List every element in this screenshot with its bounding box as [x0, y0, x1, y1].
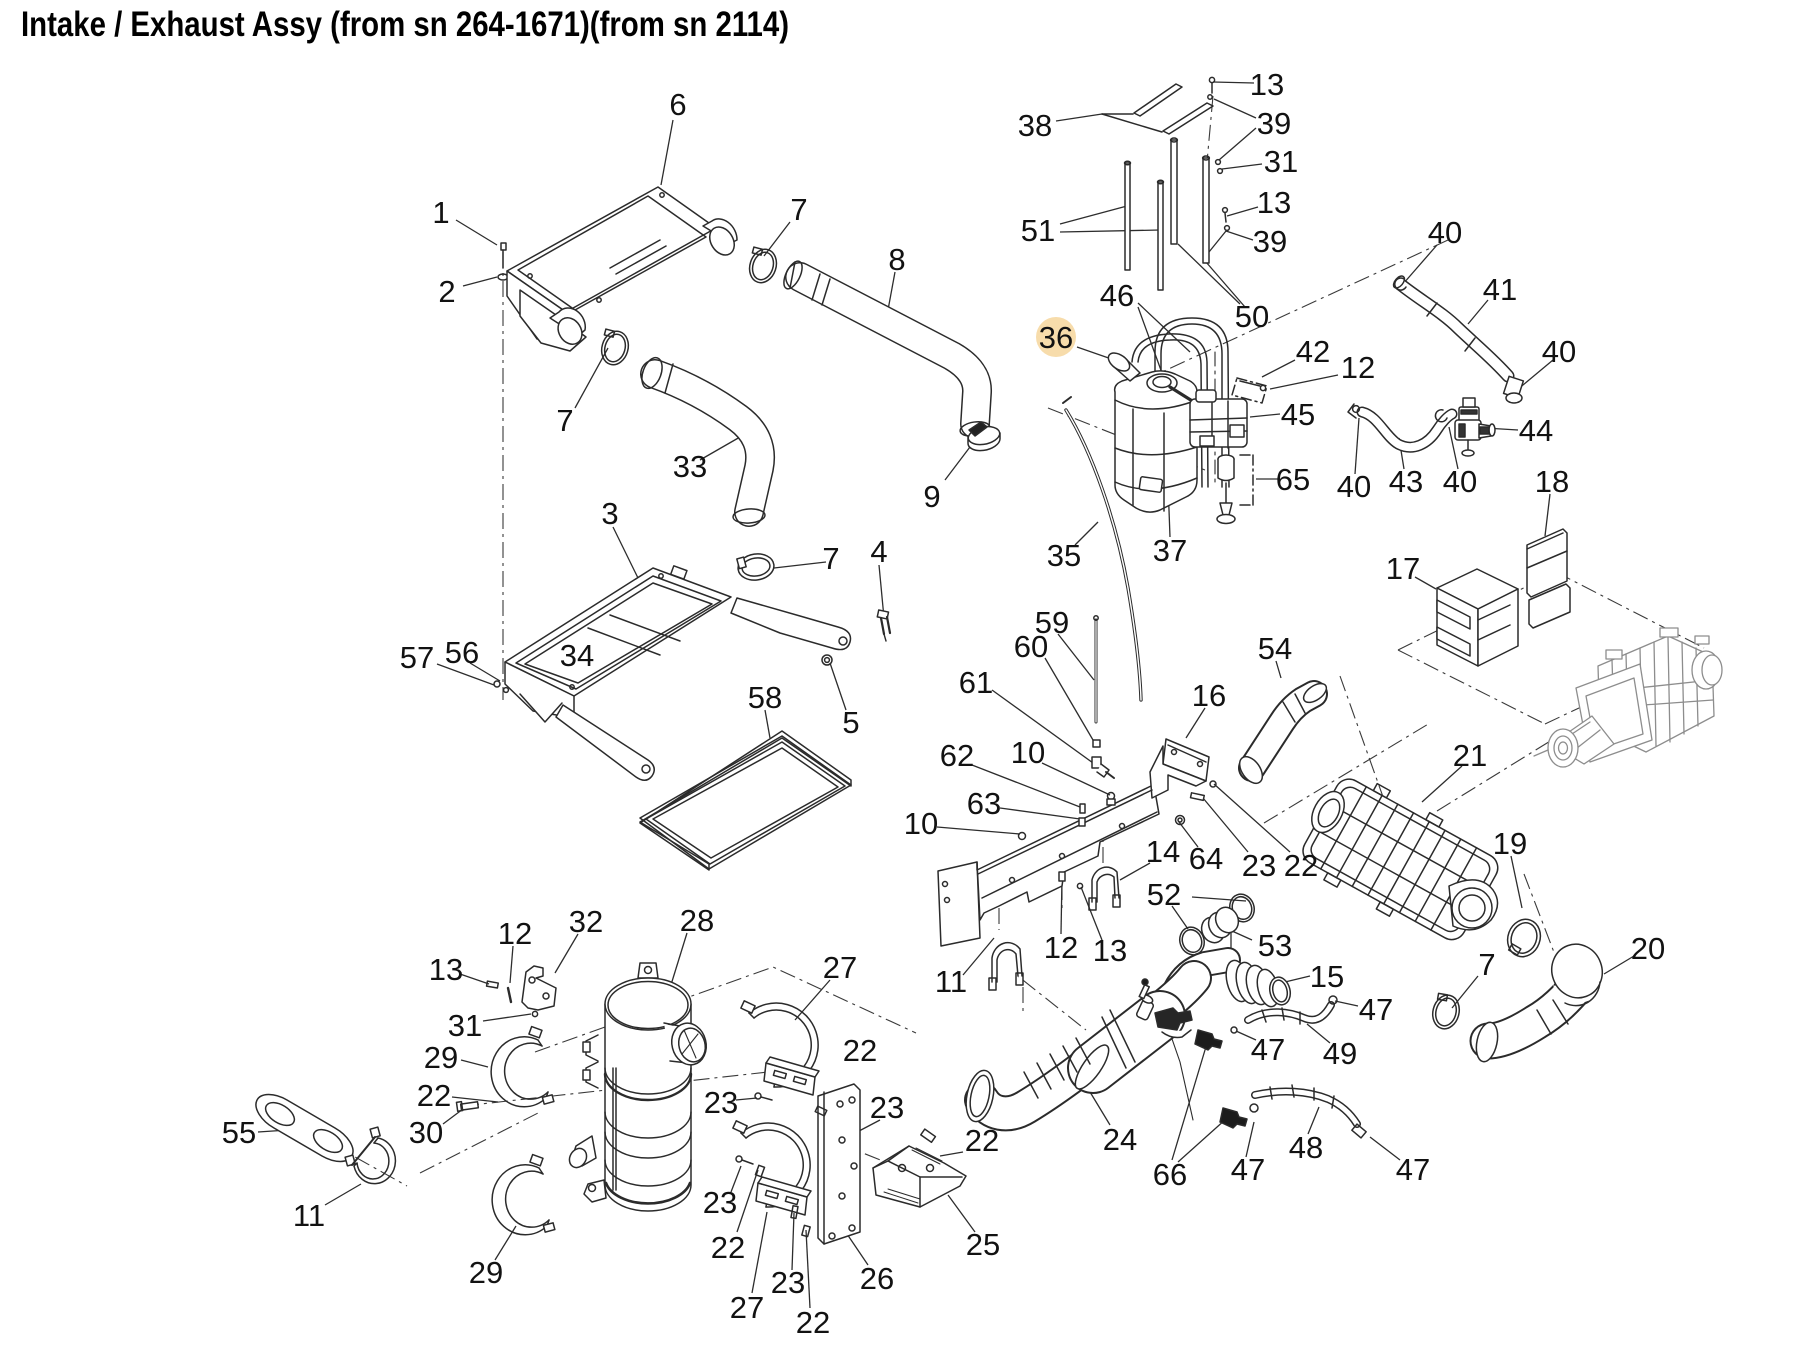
svg-text:6: 6	[669, 87, 686, 122]
svg-text:7: 7	[556, 403, 573, 438]
svg-text:54: 54	[1258, 631, 1292, 666]
svg-text:28: 28	[680, 903, 714, 938]
svg-text:36: 36	[1039, 320, 1073, 355]
svg-text:40: 40	[1337, 469, 1371, 504]
svg-text:47: 47	[1231, 1152, 1265, 1187]
svg-text:47: 47	[1396, 1152, 1430, 1187]
svg-text:58: 58	[748, 680, 782, 715]
svg-text:55: 55	[222, 1115, 256, 1150]
svg-text:17: 17	[1386, 551, 1420, 586]
svg-text:53: 53	[1258, 928, 1292, 963]
svg-text:9: 9	[923, 479, 940, 514]
svg-text:7: 7	[790, 192, 807, 227]
svg-text:4: 4	[870, 534, 887, 569]
svg-text:49: 49	[1323, 1036, 1357, 1071]
svg-text:13: 13	[1093, 933, 1127, 968]
svg-text:10: 10	[904, 806, 938, 841]
svg-text:44: 44	[1519, 413, 1553, 448]
svg-text:30: 30	[409, 1115, 443, 1150]
svg-text:29: 29	[469, 1255, 503, 1290]
svg-text:13: 13	[429, 952, 463, 987]
svg-text:43: 43	[1389, 464, 1423, 499]
svg-text:26: 26	[860, 1261, 894, 1296]
svg-text:65: 65	[1276, 462, 1310, 497]
svg-text:32: 32	[569, 904, 603, 939]
svg-text:7: 7	[1478, 947, 1495, 982]
svg-text:3: 3	[601, 496, 618, 531]
svg-text:34: 34	[560, 638, 594, 673]
svg-text:12: 12	[498, 916, 532, 951]
svg-text:23: 23	[771, 1265, 805, 1300]
svg-text:52: 52	[1147, 877, 1181, 912]
svg-text:60: 60	[1014, 629, 1048, 664]
svg-text:13: 13	[1250, 67, 1284, 102]
svg-text:56: 56	[445, 635, 479, 670]
svg-text:8: 8	[888, 242, 905, 277]
svg-text:27: 27	[823, 950, 857, 985]
svg-text:33: 33	[673, 449, 707, 484]
svg-text:39: 39	[1253, 224, 1287, 259]
svg-text:41: 41	[1483, 272, 1517, 307]
svg-text:24: 24	[1103, 1122, 1137, 1157]
svg-text:37: 37	[1153, 533, 1187, 568]
svg-text:66: 66	[1153, 1157, 1187, 1192]
svg-text:39: 39	[1257, 106, 1291, 141]
svg-text:Intake / Exhaust Assy (from sn: Intake / Exhaust Assy (from sn 264-1671)…	[21, 5, 789, 44]
svg-text:62: 62	[940, 738, 974, 773]
svg-text:22: 22	[965, 1123, 999, 1158]
svg-text:15: 15	[1310, 959, 1344, 994]
svg-text:35: 35	[1047, 538, 1081, 573]
svg-text:12: 12	[1341, 350, 1375, 385]
svg-text:31: 31	[448, 1008, 482, 1043]
svg-text:50: 50	[1235, 299, 1269, 334]
svg-text:20: 20	[1631, 931, 1665, 966]
svg-text:45: 45	[1281, 397, 1315, 432]
svg-text:31: 31	[1264, 144, 1298, 179]
svg-text:38: 38	[1018, 108, 1052, 143]
svg-text:23: 23	[703, 1185, 737, 1220]
svg-text:40: 40	[1443, 464, 1477, 499]
svg-text:51: 51	[1021, 213, 1055, 248]
svg-text:16: 16	[1192, 678, 1226, 713]
svg-text:11: 11	[935, 964, 967, 999]
svg-text:5: 5	[842, 705, 859, 740]
svg-text:22: 22	[417, 1078, 451, 1113]
svg-text:2: 2	[438, 274, 455, 309]
svg-text:29: 29	[424, 1040, 458, 1075]
svg-text:18: 18	[1535, 464, 1569, 499]
svg-text:7: 7	[822, 541, 839, 576]
svg-text:11: 11	[293, 1198, 325, 1233]
svg-text:27: 27	[730, 1290, 764, 1325]
svg-text:46: 46	[1100, 278, 1134, 313]
svg-text:23: 23	[704, 1085, 738, 1120]
svg-text:40: 40	[1542, 334, 1576, 369]
svg-text:48: 48	[1289, 1130, 1323, 1165]
svg-text:22: 22	[796, 1305, 830, 1340]
svg-text:19: 19	[1493, 826, 1527, 861]
svg-text:57: 57	[400, 640, 434, 675]
svg-text:40: 40	[1428, 215, 1462, 250]
svg-text:42: 42	[1296, 334, 1330, 369]
svg-text:23: 23	[870, 1090, 904, 1125]
svg-text:61: 61	[959, 665, 993, 700]
svg-text:64: 64	[1189, 841, 1223, 876]
svg-text:14: 14	[1146, 834, 1180, 869]
svg-text:21: 21	[1453, 738, 1487, 773]
svg-text:13: 13	[1257, 185, 1291, 220]
svg-text:63: 63	[967, 786, 1001, 821]
svg-text:47: 47	[1359, 992, 1393, 1027]
svg-text:10: 10	[1011, 735, 1045, 770]
svg-text:25: 25	[966, 1227, 1000, 1262]
svg-text:47: 47	[1251, 1032, 1285, 1067]
svg-text:1: 1	[432, 195, 449, 230]
svg-text:22: 22	[711, 1230, 745, 1265]
svg-text:22: 22	[843, 1033, 877, 1068]
svg-text:22: 22	[1284, 848, 1318, 883]
svg-text:23: 23	[1242, 848, 1276, 883]
svg-text:12: 12	[1044, 930, 1078, 965]
